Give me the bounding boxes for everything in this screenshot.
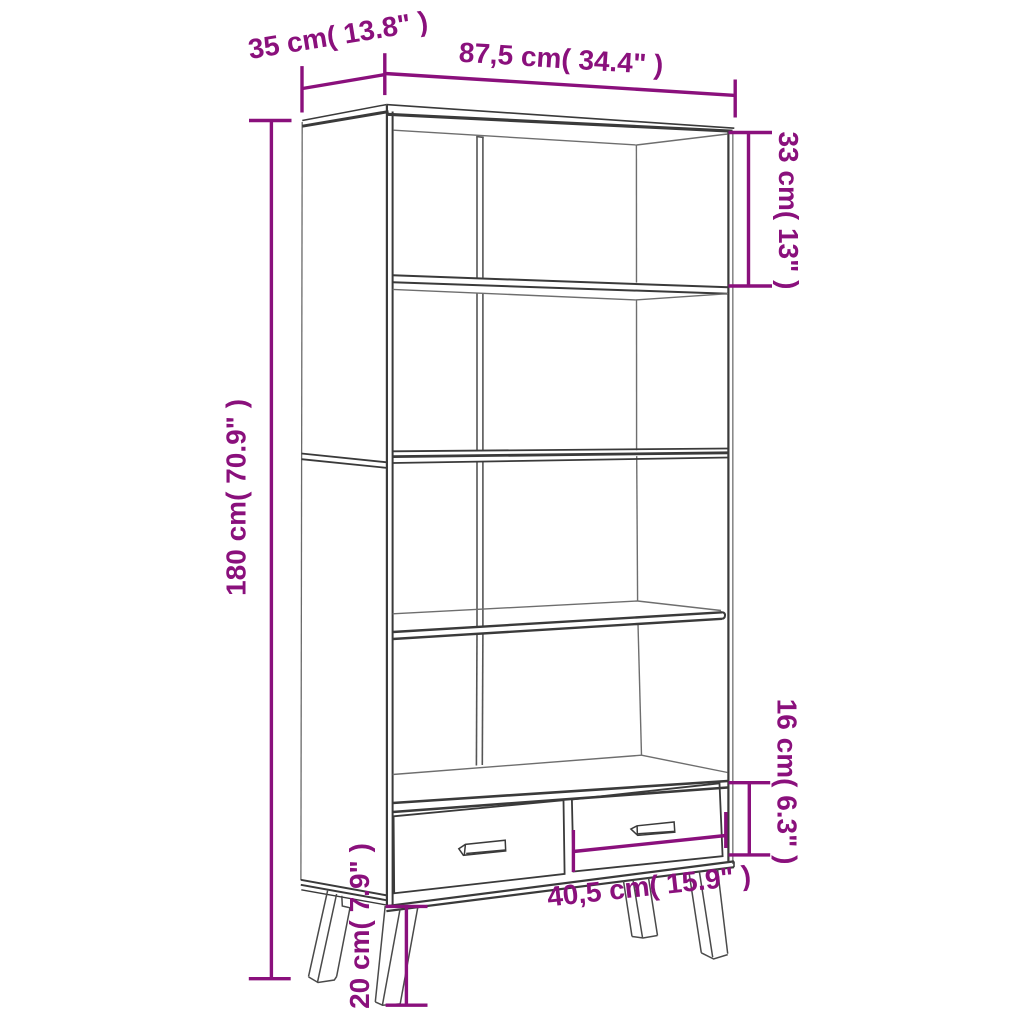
svg-text:33 cm( 13" ): 33 cm( 13" )	[773, 131, 804, 289]
svg-text:87,5 cm( 34.4" ): 87,5 cm( 34.4" )	[458, 37, 664, 81]
svg-text:16 cm( 6.3" ): 16 cm( 6.3" )	[772, 699, 803, 865]
svg-text:20 cm( 7.9" ): 20 cm( 7.9" )	[344, 843, 375, 1009]
svg-text:35 cm( 13.8" ): 35 cm( 13.8" )	[246, 5, 430, 65]
svg-text:180 cm( 70.9" ): 180 cm( 70.9" )	[220, 399, 251, 596]
